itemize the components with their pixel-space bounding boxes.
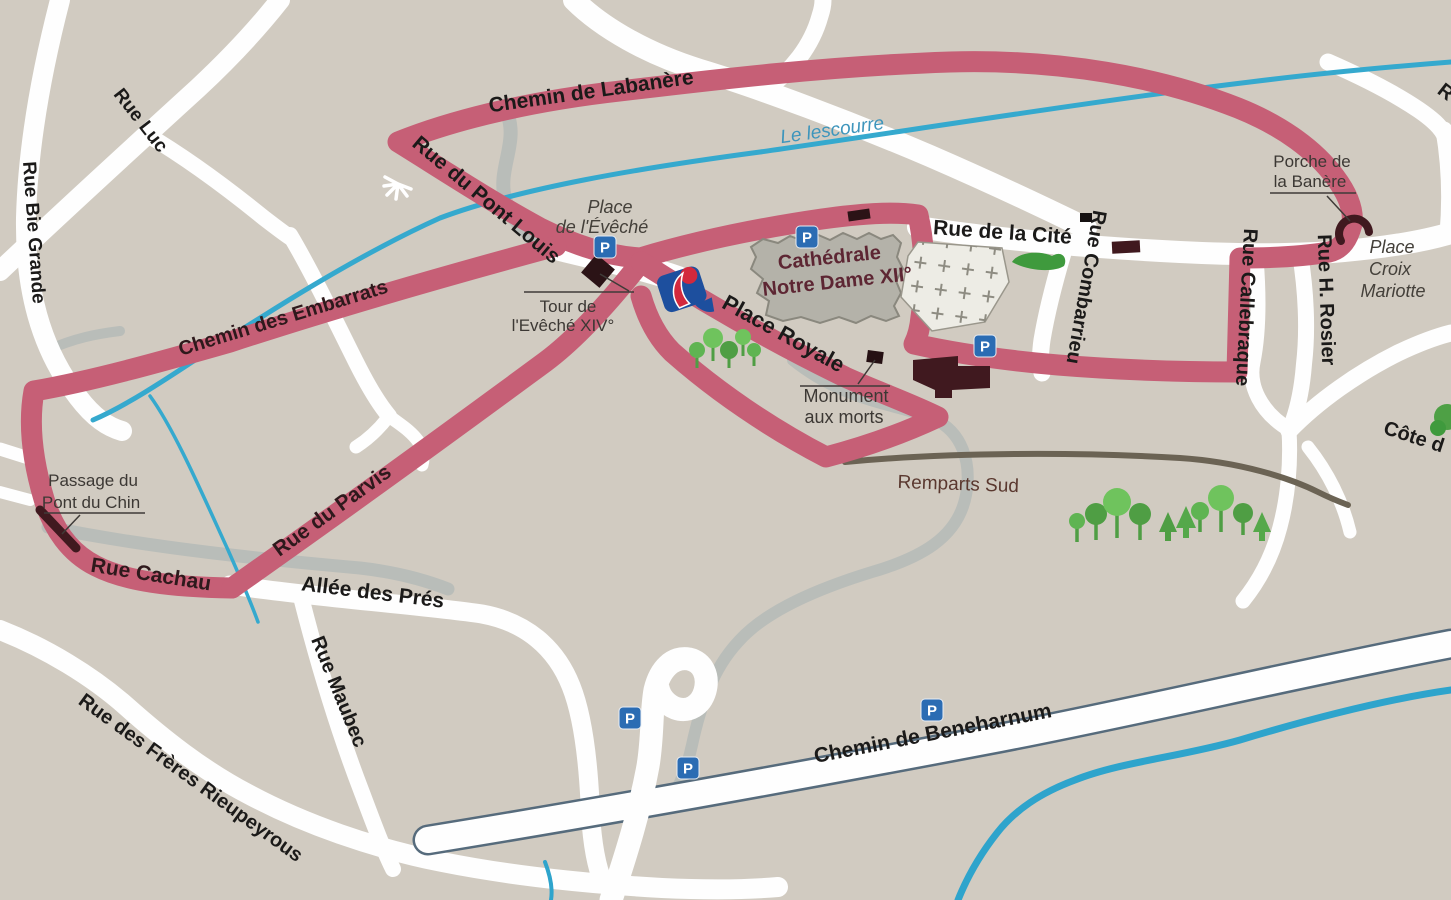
label-tour-2: l'Evêché XIV° <box>512 316 615 335</box>
label-passage-2: Pont du Chin <box>42 493 140 512</box>
parking-icon: P <box>921 699 943 721</box>
parking-icon: P <box>619 707 641 729</box>
tree-icon <box>735 329 751 345</box>
tree-icon <box>689 342 705 358</box>
parking-letter: P <box>625 711 635 728</box>
parking-letter: P <box>927 703 937 720</box>
tree-icon <box>1129 503 1151 525</box>
tree-icon <box>1208 485 1234 511</box>
parking-letter: P <box>802 230 812 247</box>
tree-icon <box>1233 503 1253 523</box>
label-croix-2: Croix <box>1369 259 1412 279</box>
parking-letter: P <box>683 761 693 778</box>
tree-icon <box>703 328 723 348</box>
monument-aux-morts-building <box>866 350 884 364</box>
parking-letter: P <box>980 339 990 356</box>
label-monument-1: Monument <box>803 386 888 406</box>
parking-icon: P <box>594 236 616 258</box>
building-cite-east <box>1112 240 1141 253</box>
label-porche-2: la Banère <box>1274 172 1347 191</box>
label-rue-rosier: Rue H. Rosier <box>1313 234 1340 366</box>
tree-icon <box>747 343 761 357</box>
tree-icon <box>1103 488 1131 516</box>
tree-icon <box>1069 513 1085 529</box>
label-remparts-sud: Remparts Sud <box>897 472 1019 497</box>
road-left-stub2 <box>0 492 30 500</box>
label-tour-1: Tour de <box>540 297 597 316</box>
label-monument-2: aux morts <box>804 407 883 427</box>
parking-icon: P <box>974 335 996 357</box>
parking-icon: P <box>677 757 699 779</box>
parking-letter: P <box>600 240 610 257</box>
map-canvas: P P P P P P Chemin de Labanère Rue du Po… <box>0 0 1451 900</box>
town-map: P P P P P P Chemin de Labanère Rue du Po… <box>0 0 1451 900</box>
label-croix-3: Mariotte <box>1360 281 1425 301</box>
parking-icon: P <box>796 226 818 248</box>
label-porche-1: Porche de <box>1273 152 1351 171</box>
tree-icon <box>720 341 738 359</box>
road-topright-down <box>1444 130 1450 234</box>
tree-icon <box>1191 502 1209 520</box>
label-place-eveche-1: Place <box>587 197 632 217</box>
label-croix-1: Place <box>1369 237 1414 257</box>
label-place-eveche-2: de l'Évêché <box>556 217 649 237</box>
label-passage-1: Passage du <box>48 471 138 490</box>
